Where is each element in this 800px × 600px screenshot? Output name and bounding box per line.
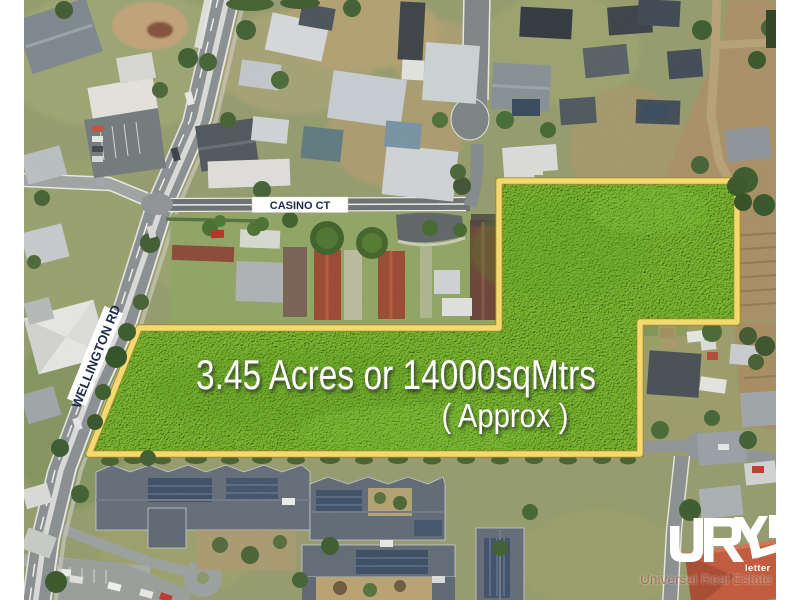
svg-text:3.45 Acres or 14000sqMtrs: 3.45 Acres or 14000sqMtrs — [196, 351, 596, 398]
svg-text:( Approx ): ( Approx ) — [442, 397, 569, 434]
svg-text:CASINO CT: CASINO CT — [270, 200, 331, 212]
svg-text:Universal Real Estate: Universal Real Estate — [640, 571, 772, 587]
